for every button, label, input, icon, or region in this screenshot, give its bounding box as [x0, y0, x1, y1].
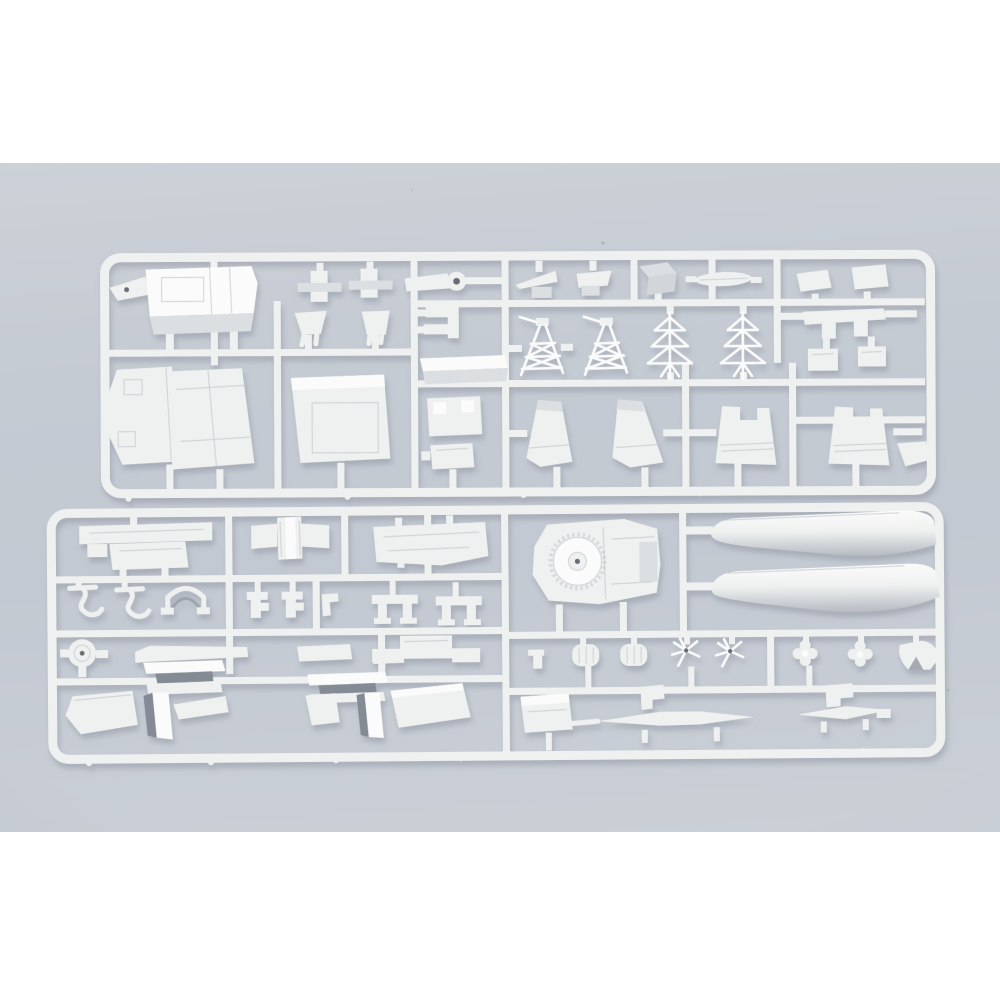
- part-ventilator-cowl: [899, 641, 938, 670]
- part-wing-wedge-b: [577, 271, 612, 296]
- part-step-plate-b: [825, 683, 853, 707]
- part-hangar-door-b: [356, 693, 383, 738]
- part-corner-plate: [897, 441, 928, 466]
- part-yardarm-a: [561, 711, 754, 727]
- part-fitting-plate: [427, 396, 482, 436]
- dust-speck: [947, 689, 950, 692]
- part-deck-clip-a: [298, 271, 342, 302]
- part-ships-boat: [695, 271, 752, 287]
- part-clip-c: [322, 593, 339, 616]
- part-stand-b: [436, 596, 482, 625]
- part-ramp-b: [305, 693, 339, 725]
- part-fairlead-a: [572, 644, 599, 666]
- part-barbette-platform: [532, 519, 661, 605]
- part-propeller-c: [793, 640, 818, 666]
- part-clip-b: [282, 592, 304, 618]
- part-fitting-box: [421, 443, 474, 469]
- sprue-lower: [51, 507, 941, 767]
- part-searchlight-disc: [60, 639, 108, 677]
- part-block-b: [858, 346, 886, 366]
- sprue-upper: [104, 254, 931, 502]
- part-notched-casing-b: [828, 406, 889, 465]
- part-ramp-a: [65, 691, 137, 735]
- part-winged-deck: [79, 522, 212, 570]
- photo-area: [0, 163, 1000, 832]
- part-hangar-door-a: [143, 693, 172, 740]
- part-block-a: [808, 349, 838, 371]
- sprue-photo-canvas: [0, 163, 1000, 832]
- part-bracket-u: [803, 308, 886, 338]
- part-casing-box: [639, 262, 676, 295]
- part-bow-tip: [110, 277, 150, 301]
- part-wing-wedge-a: [516, 271, 558, 298]
- part-lattice-mast-b: [721, 312, 765, 379]
- part-lattice-tower-a: [520, 317, 563, 375]
- part-funnel-b: [612, 399, 663, 467]
- part-fairlead-b: [620, 644, 647, 666]
- part-superstructure-deckhouse: [110, 266, 258, 335]
- part-wedge-b: [390, 683, 470, 728]
- part-funnel-a: [526, 400, 572, 467]
- part-cross-deck: [251, 516, 329, 560]
- part-deckhouse-strip: [420, 355, 508, 384]
- part-equipment-box: [520, 693, 572, 732]
- part-arch-support: [161, 588, 210, 614]
- part-yardarm-b: [798, 706, 891, 720]
- part-rudder-plate-a: [797, 270, 832, 292]
- part-hull-side-b: [167, 368, 254, 469]
- part-c-bracket: [424, 305, 459, 338]
- part-propeller-d: [848, 641, 873, 667]
- part-rudder-plate-b: [852, 264, 889, 289]
- product-photo-page: [0, 0, 1000, 1000]
- part-deck-clip-b: [349, 269, 393, 298]
- part-davit-b: [117, 589, 149, 617]
- part-hull-blister-upper: [711, 510, 936, 557]
- part-clip-a: [247, 592, 269, 618]
- part-davit-a: [70, 587, 102, 615]
- part-wedge-a: [173, 696, 228, 719]
- part-lattice-tower-b: [584, 317, 627, 375]
- part-stand-a: [372, 595, 418, 624]
- part-hangar-roof: [291, 375, 390, 463]
- part-notched-casing-a: [715, 406, 776, 465]
- part-hull-blister-lower: [711, 563, 939, 613]
- part-deck-bar: [372, 635, 480, 663]
- dust-speck: [601, 241, 604, 244]
- part-anchor-fitting: [528, 650, 544, 669]
- dust-speck: [411, 189, 413, 191]
- part-step-plate-a: [640, 685, 664, 710]
- bow-hole: [124, 287, 129, 292]
